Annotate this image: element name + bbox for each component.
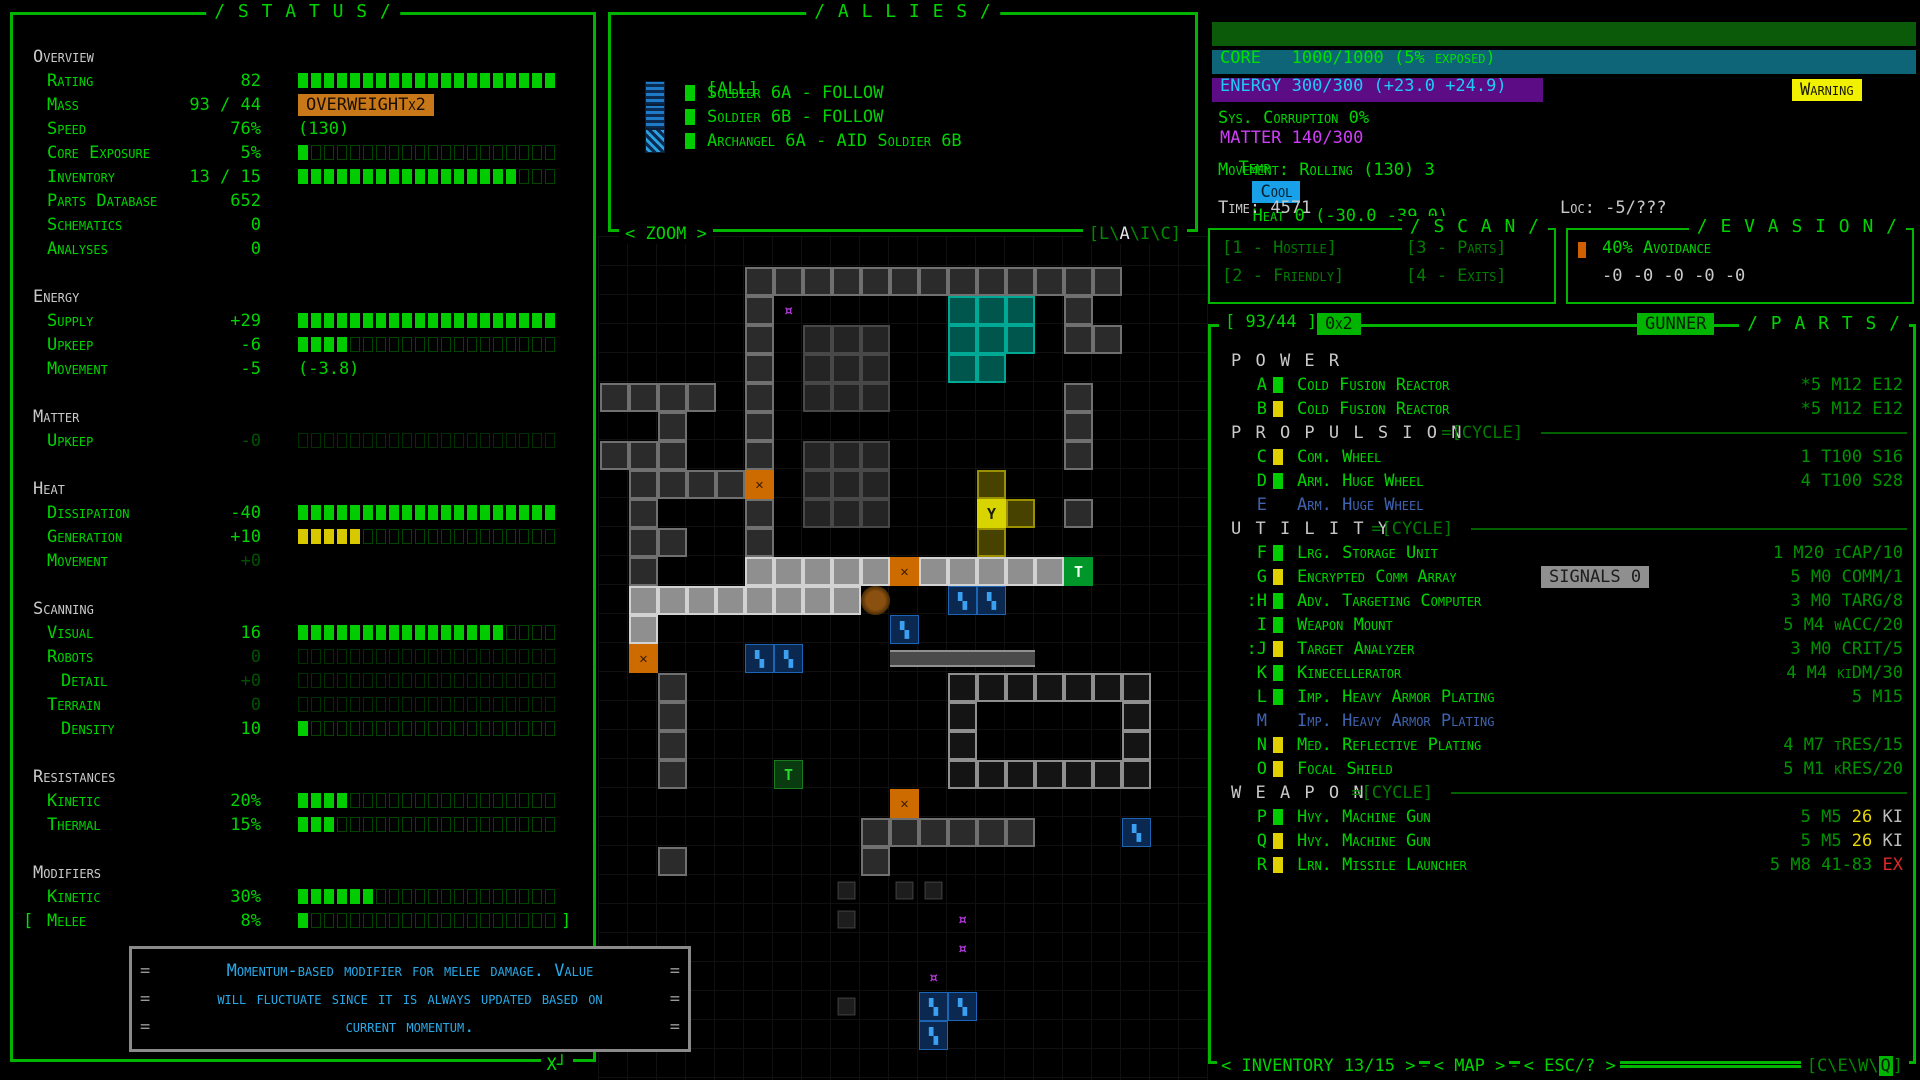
stat-label: Detail bbox=[61, 669, 107, 693]
bar-segment bbox=[324, 721, 334, 736]
part-stat: 3 M0 CRIT/5 bbox=[1790, 639, 1903, 659]
status-row-movement[interactable]: Movement-5(-3.8) bbox=[13, 357, 593, 381]
cycle-button[interactable]: =[CYCLE] bbox=[1341, 781, 1433, 805]
bar-segment bbox=[428, 169, 438, 184]
bar-segment bbox=[506, 817, 516, 832]
status-row-density[interactable]: Density10 bbox=[13, 717, 593, 741]
bar-segment bbox=[467, 913, 477, 928]
parts-row-b-cold-fusion-reactor[interactable]: BCold Fusion Reactor*5 M12 E12 bbox=[1211, 397, 1913, 421]
parts-row-m-imp-heavy-armor-plating[interactable]: MImp. Heavy Armor Plating bbox=[1211, 709, 1913, 733]
stat-label: Kinetic bbox=[47, 885, 101, 909]
bar-segment bbox=[376, 673, 386, 688]
status-row-thermal[interactable]: Thermal15% bbox=[13, 813, 593, 837]
status-row-robots[interactable]: Robots0 bbox=[13, 645, 593, 669]
bar-segment bbox=[324, 913, 334, 928]
map-tile-robot-blue[interactable]: ▚ bbox=[919, 1021, 948, 1050]
bar-segment bbox=[519, 697, 529, 712]
status-row-supply[interactable]: Supply+29 bbox=[13, 309, 593, 333]
bar-segment bbox=[376, 505, 386, 520]
map-tile-wall bbox=[861, 847, 890, 876]
parts-row-j-target-analyzer[interactable]: :JTarget Analyzer3 M0 CRIT/5 bbox=[1211, 637, 1913, 661]
status-row-upkeep[interactable]: Upkeep-6 bbox=[13, 333, 593, 357]
bar-segment bbox=[389, 313, 399, 328]
part-state-block bbox=[1273, 377, 1283, 393]
bar-segment bbox=[376, 793, 386, 808]
status-section-heat: Heat bbox=[13, 477, 593, 501]
stat-bar bbox=[298, 793, 558, 809]
mode-l[interactable]: L bbox=[1099, 224, 1109, 244]
status-row-rating[interactable]: Rating82 bbox=[13, 69, 593, 93]
footer-button-map[interactable]: < MAP > bbox=[1430, 1056, 1510, 1076]
map-tile-wall-mid bbox=[1006, 760, 1035, 789]
bar-segment bbox=[311, 73, 321, 88]
status-row-terrain[interactable]: Terrain0 bbox=[13, 693, 593, 717]
mode-i[interactable]: I bbox=[1140, 224, 1150, 244]
stat-suffix: (-3.8) bbox=[298, 357, 359, 381]
parts-panel: [ 93/44 ] 0x2 GUNNER / P A R T S / P O W… bbox=[1208, 324, 1916, 1064]
bar-segment bbox=[402, 673, 412, 688]
part-name: Adv. Targeting Computer bbox=[1297, 589, 1481, 613]
bar-segment bbox=[441, 793, 451, 808]
bar-segment bbox=[402, 625, 412, 640]
bracket: [ bbox=[1807, 1056, 1817, 1076]
part-name: Encrypted Comm Array bbox=[1297, 565, 1457, 589]
part-name: Hvy. Machine Gun bbox=[1297, 829, 1431, 853]
bar-segment bbox=[363, 145, 373, 160]
bar-segment bbox=[519, 529, 529, 544]
bar-segment bbox=[337, 649, 347, 664]
bar-segment bbox=[441, 697, 451, 712]
map-tile-wall-bright bbox=[919, 557, 948, 586]
bar-segment bbox=[506, 793, 516, 808]
bar-segment bbox=[350, 505, 360, 520]
map-tile-item-purple[interactable]: ¤ bbox=[948, 934, 977, 963]
parts-row-n-med-reflective-plating[interactable]: NMed. Reflective Plating4 M7 tRES/15 bbox=[1211, 733, 1913, 757]
stat-label: Analyses bbox=[47, 237, 108, 261]
part-name: Com. Wheel bbox=[1297, 445, 1381, 469]
bar-segment bbox=[428, 913, 438, 928]
allies-all-row[interactable]: [ALL] bbox=[611, 53, 1195, 77]
bar-segment bbox=[415, 313, 425, 328]
bar-segment bbox=[389, 505, 399, 520]
bar-segment bbox=[545, 505, 555, 520]
bar-segment bbox=[402, 337, 412, 352]
loc-readout: Loc: -5/??? bbox=[1560, 196, 1667, 220]
bar-segment bbox=[545, 337, 555, 352]
energy-label: ENERGY bbox=[1220, 76, 1281, 96]
status-row-core-exposure[interactable]: Core Exposure5% bbox=[13, 141, 593, 165]
bar-segment bbox=[415, 169, 425, 184]
mode-a[interactable]: A bbox=[1120, 224, 1130, 244]
bar-segment bbox=[428, 433, 438, 448]
tooltip-line: = will fluctuate since it is always upda… bbox=[140, 987, 680, 1011]
bar-segment bbox=[454, 721, 464, 736]
bar-segment bbox=[415, 625, 425, 640]
map-tile-wall bbox=[1064, 267, 1093, 296]
map-tile-machine bbox=[803, 441, 832, 470]
separator: \ bbox=[1827, 1056, 1837, 1076]
parts-row-l-imp-heavy-armor-plating[interactable]: LImp. Heavy Armor Plating5 M15 bbox=[1211, 685, 1913, 709]
bar-segment bbox=[324, 673, 334, 688]
part-stats: 5 M5 26 KI bbox=[1801, 829, 1903, 853]
parts-row-q-hvy-machine-gun[interactable]: QHvy. Machine Gun5 M5 26 KI bbox=[1211, 829, 1913, 853]
map-tile-item-purple[interactable]: ¤ bbox=[774, 296, 803, 325]
map-tile-wall-mid bbox=[1064, 760, 1093, 789]
map-tile-machine-olive bbox=[977, 528, 1006, 557]
stat-label: Upkeep bbox=[47, 333, 93, 357]
energy-value: 300/300 (+23.0 +24.9) bbox=[1292, 76, 1507, 96]
map-tile-item-crate[interactable]: ✕ bbox=[890, 557, 919, 586]
bar-segment bbox=[532, 313, 542, 328]
map-tile-robot-blue[interactable]: ▚ bbox=[774, 644, 803, 673]
parts-row-r-lrn-missile-launcher[interactable]: RLrn. Missile Launcher5 M8 41-83 EX bbox=[1211, 853, 1913, 877]
bar-segment bbox=[311, 817, 321, 832]
parts-row-a-cold-fusion-reactor[interactable]: ACold Fusion Reactor*5 M12 E12 bbox=[1211, 373, 1913, 397]
part-stat: KI bbox=[1872, 807, 1903, 827]
bar-segment bbox=[441, 337, 451, 352]
bar-segment bbox=[311, 697, 321, 712]
bar-segment bbox=[298, 145, 308, 160]
map-tile-robot-blue[interactable]: ▚ bbox=[977, 586, 1006, 615]
bar-segment bbox=[311, 625, 321, 640]
stat-value: 0 bbox=[131, 693, 261, 717]
map-tile-wall-bright bbox=[803, 586, 832, 615]
map-tile-wall-bright bbox=[832, 557, 861, 586]
bar-segment bbox=[389, 793, 399, 808]
map-tile-machine bbox=[803, 470, 832, 499]
parts-row-k-kinecellerator[interactable]: KKinecellerator4 M4 kiDM/30 bbox=[1211, 661, 1913, 685]
parts-overweight-badge[interactable]: 0x2 bbox=[1317, 313, 1361, 335]
footer-button-esc[interactable]: < ESC/? > bbox=[1520, 1056, 1620, 1076]
bar-segment bbox=[363, 529, 373, 544]
map-tile-wall bbox=[1064, 441, 1093, 470]
map-tile-wall-mid bbox=[948, 673, 977, 702]
section-label: Modifiers bbox=[33, 861, 101, 885]
stat-value: +0 bbox=[131, 549, 261, 573]
section-label: P R O P U L S I O N bbox=[1231, 421, 1463, 445]
ally-row-archangel-6a-aid-soldier-6b[interactable]: Archangel 6A - AID Soldier 6B bbox=[611, 129, 1195, 153]
map-tile-item-crate[interactable]: ✕ bbox=[745, 470, 774, 499]
section-label: Energy bbox=[33, 285, 79, 309]
parts-row-d-arm-huge-wheel[interactable]: DArm. Huge Wheel4 T100 S28 bbox=[1211, 469, 1913, 493]
bar-segment bbox=[480, 505, 490, 520]
part-stats: 1 M20 iCAP/10 bbox=[1773, 541, 1903, 565]
map-tile-wall bbox=[1006, 267, 1035, 296]
separator: \ bbox=[1150, 224, 1160, 244]
status-row-speed[interactable]: Speed76%(130) bbox=[13, 117, 593, 141]
cycle-button[interactable]: =[CYCLE] bbox=[1361, 517, 1453, 541]
bar-segment bbox=[454, 889, 464, 904]
part-stats: 1 T100 S16 bbox=[1801, 445, 1903, 469]
map-tile-wall-mid bbox=[1035, 760, 1064, 789]
parts-row-h-adv-targeting-computer[interactable]: :HAdv. Targeting Computer3 M0 TARG/8 bbox=[1211, 589, 1913, 613]
map-tile-machine-small bbox=[838, 998, 856, 1016]
map-tile-wall bbox=[745, 354, 774, 383]
bar-segment bbox=[389, 889, 399, 904]
status-row-movement[interactable]: Movement+0 bbox=[13, 549, 593, 573]
part-state-block bbox=[1273, 857, 1283, 873]
section-label: Overview bbox=[33, 45, 94, 69]
bar-segment bbox=[337, 313, 347, 328]
bar-segment bbox=[467, 145, 477, 160]
part-state-block bbox=[1273, 737, 1283, 753]
part-stat: 5 M8 41-83 bbox=[1770, 855, 1883, 875]
status-row-generation[interactable]: Generation+10 bbox=[13, 525, 593, 549]
bar-segment bbox=[454, 625, 464, 640]
status-row-kinetic[interactable]: Kinetic30% bbox=[13, 885, 593, 909]
bracket: [ bbox=[1089, 224, 1099, 244]
bar-segment bbox=[363, 313, 373, 328]
map-tile-machine-small bbox=[896, 882, 914, 900]
bar-segment bbox=[311, 721, 321, 736]
bar-segment bbox=[298, 625, 308, 640]
part-slot-letter: G bbox=[1241, 565, 1267, 589]
ally-row-soldier-6a-follow[interactable]: Soldier 6A - FOLLOW bbox=[611, 81, 1195, 105]
stat-label: Generation bbox=[47, 525, 122, 549]
status-row-detail[interactable]: Detail+0 bbox=[13, 669, 593, 693]
bar-segment bbox=[532, 169, 542, 184]
mode-c[interactable]: C bbox=[1817, 1056, 1827, 1076]
bar-segment bbox=[311, 337, 321, 352]
status-row-dissipation[interactable]: Dissipation-40 bbox=[13, 501, 593, 525]
map-tile-machine-olive bbox=[977, 470, 1006, 499]
bar-segment bbox=[480, 817, 490, 832]
parts-row-p-hvy-machine-gun[interactable]: PHvy. Machine Gun5 M5 26 KI bbox=[1211, 805, 1913, 829]
stat-label: Upkeep bbox=[47, 429, 93, 453]
stat-bar bbox=[298, 73, 558, 89]
bar-segment bbox=[363, 505, 373, 520]
map-tile-conveyor bbox=[948, 650, 977, 667]
part-state-block bbox=[1273, 665, 1283, 681]
map-tile-wall-mid bbox=[948, 760, 977, 789]
map-tile-wall-mid bbox=[977, 760, 1006, 789]
scan-option-friendly[interactable]: [2 - Friendly] bbox=[1222, 266, 1344, 286]
bar-segment bbox=[376, 625, 386, 640]
bar-segment bbox=[506, 433, 516, 448]
bar-segment bbox=[376, 73, 386, 88]
mode-w[interactable]: W bbox=[1858, 1056, 1868, 1076]
bar-segment bbox=[480, 337, 490, 352]
parts-row-o-focal-shield[interactable]: OFocal Shield5 M1 kRES/20 bbox=[1211, 757, 1913, 781]
status-row-upkeep[interactable]: Upkeep-0 bbox=[13, 429, 593, 453]
bar-segment bbox=[493, 817, 503, 832]
part-slot-letter: O bbox=[1241, 757, 1267, 781]
stat-value: 15% bbox=[131, 813, 261, 837]
bar-segment bbox=[415, 649, 425, 664]
status-row-schematics[interactable]: Schematics0 bbox=[13, 213, 593, 237]
stat-value: 10 bbox=[131, 717, 261, 741]
map-tile-item-purple[interactable]: ¤ bbox=[919, 963, 948, 992]
bar-segment bbox=[298, 73, 308, 88]
map-tile-wall bbox=[658, 412, 687, 441]
map-tile-wall bbox=[977, 267, 1006, 296]
map-tile-player[interactable]: T bbox=[774, 760, 803, 789]
map-tile-creature-brown[interactable] bbox=[861, 586, 890, 615]
footer-button-inventory-13-15[interactable]: < INVENTORY 13/15 > bbox=[1217, 1056, 1419, 1076]
bar-segment bbox=[389, 697, 399, 712]
allies-mode-switch[interactable]: [L\A\I\C] bbox=[1083, 224, 1187, 244]
map-tile-wall-bright bbox=[716, 586, 745, 615]
parts-mode-badge[interactable]: GUNNER bbox=[1637, 313, 1714, 335]
bar-segment bbox=[350, 145, 360, 160]
bar-segment bbox=[298, 697, 308, 712]
map-tile-wall-bright bbox=[774, 557, 803, 586]
ally-health-block bbox=[685, 109, 695, 125]
bar-segment bbox=[519, 721, 529, 736]
bar-segment bbox=[493, 793, 503, 808]
bar-segment bbox=[506, 529, 516, 544]
scan-option-hostile[interactable]: [1 - Hostile] bbox=[1222, 238, 1337, 258]
map-tile-wall-bright bbox=[629, 615, 658, 644]
bar-segment bbox=[350, 313, 360, 328]
bar-segment bbox=[363, 337, 373, 352]
map-tile-exit-green[interactable]: T bbox=[1064, 557, 1093, 586]
bar-segment bbox=[428, 337, 438, 352]
parts-row-f-lrg-storage-unit[interactable]: FLrg. Storage Unit1 M20 iCAP/10 bbox=[1211, 541, 1913, 565]
map-tile-machine bbox=[861, 470, 890, 499]
bar-segment bbox=[532, 817, 542, 832]
mode-e[interactable]: E bbox=[1838, 1056, 1848, 1076]
bar-segment bbox=[467, 793, 477, 808]
bar-segment bbox=[389, 433, 399, 448]
bar-segment bbox=[454, 913, 464, 928]
bar-segment bbox=[337, 169, 347, 184]
bar-segment bbox=[493, 433, 503, 448]
parts-panel-title: / P A R T S / bbox=[1739, 313, 1909, 334]
map-tile-wall-bright bbox=[832, 586, 861, 615]
status-panel-title: / S T A T U S / bbox=[206, 1, 400, 22]
bar-segment bbox=[350, 649, 360, 664]
melee-modifier-tooltip: = Momentum-based modifier for melee dama… bbox=[129, 946, 691, 1052]
parts-row-i-weapon-mount[interactable]: IWeapon Mount5 M4 wACC/20 bbox=[1211, 613, 1913, 637]
part-state-block bbox=[1273, 593, 1283, 609]
allies-panel: / A L L I E S / [ALL] Soldier 6A - FOLLO… bbox=[608, 12, 1198, 232]
stat-bar bbox=[298, 337, 558, 353]
bar-segment bbox=[337, 697, 347, 712]
status-section-modifiers: Modifiers bbox=[13, 861, 593, 885]
map-tile-wall bbox=[803, 267, 832, 296]
bar-segment bbox=[298, 505, 308, 520]
map-tile-wall bbox=[1064, 383, 1093, 412]
status-close-button[interactable]: X┘ bbox=[541, 1055, 573, 1075]
part-stat: 26 bbox=[1852, 831, 1872, 851]
stat-label: Density bbox=[61, 717, 115, 741]
parts-row-e-arm-huge-wheel[interactable]: EArm. Huge Wheel bbox=[1211, 493, 1913, 517]
map-tile-wall bbox=[890, 818, 919, 847]
parts-section-power: P O W E R bbox=[1211, 349, 1913, 373]
map-tile-wall bbox=[658, 383, 687, 412]
mode-q[interactable]: Q bbox=[1879, 1056, 1893, 1076]
status-row-inventory[interactable]: Inventory13 / 15 bbox=[13, 165, 593, 189]
status-row-kinetic[interactable]: Kinetic20% bbox=[13, 789, 593, 813]
ally-row-soldier-6b-follow[interactable]: Soldier 6B - FOLLOW bbox=[611, 105, 1195, 129]
bar-segment bbox=[350, 697, 360, 712]
map-tile-robot-blue[interactable]: ▚ bbox=[948, 586, 977, 615]
bar-segment bbox=[519, 73, 529, 88]
map-tile-robot-blue[interactable]: ▚ bbox=[919, 992, 948, 1021]
bar-segment bbox=[480, 73, 490, 88]
parts-row-g-encrypted-comm-array[interactable]: GEncrypted Comm ArraySIGNALS 05 M0 COMM/… bbox=[1211, 565, 1913, 589]
bar-segment bbox=[389, 337, 399, 352]
evasion-panel: / E V A S I O N / 40% Avoidance -0 -0 -0… bbox=[1566, 228, 1914, 304]
bar-segment bbox=[376, 889, 386, 904]
map-tile-item-crate[interactable]: ✕ bbox=[629, 644, 658, 673]
bar-segment bbox=[337, 913, 347, 928]
status-row-visual[interactable]: Visual16 bbox=[13, 621, 593, 645]
part-name: Focal Shield bbox=[1297, 757, 1393, 781]
time-readout: Time: 4571 bbox=[1218, 196, 1311, 220]
map-tile-robot-blue[interactable]: ▚ bbox=[745, 644, 774, 673]
bar-segment bbox=[298, 337, 308, 352]
status-row-analyses[interactable]: Analyses0 bbox=[13, 237, 593, 261]
bar-segment bbox=[337, 817, 347, 832]
map-tile-wall-mid bbox=[1093, 673, 1122, 702]
bar-segment bbox=[350, 529, 360, 544]
map-tile-robot-blue[interactable]: ▚ bbox=[948, 992, 977, 1021]
part-slot-letter: Q bbox=[1241, 829, 1267, 853]
bar-segment bbox=[493, 649, 503, 664]
scan-option-parts[interactable]: [3 - Parts] bbox=[1406, 238, 1507, 258]
mode-c[interactable]: C bbox=[1161, 224, 1171, 244]
map-tile-wall bbox=[745, 528, 774, 557]
parts-row-c-com-wheel[interactable]: CCom. Wheel1 T100 S16 bbox=[1211, 445, 1913, 469]
bar-segment bbox=[441, 73, 451, 88]
bar-segment bbox=[441, 505, 451, 520]
bar-segment bbox=[298, 721, 308, 736]
status-row-melee[interactable]: []Melee8% bbox=[13, 909, 593, 933]
bar-segment bbox=[402, 697, 412, 712]
map-tile-item-purple[interactable]: ¤ bbox=[948, 905, 977, 934]
map-tile-item-crate[interactable]: ✕ bbox=[890, 789, 919, 818]
map-tile-robot-yellow[interactable]: Y bbox=[977, 499, 1006, 528]
part-state-block bbox=[1273, 809, 1283, 825]
bar-segment bbox=[480, 913, 490, 928]
map-tile-wall bbox=[948, 267, 977, 296]
bar-segment bbox=[376, 649, 386, 664]
bar-segment bbox=[454, 817, 464, 832]
status-row-mass[interactable]: Mass93 / 44OVERWEIGHTx2 bbox=[13, 93, 593, 117]
part-stat: 4 T100 S28 bbox=[1801, 471, 1903, 491]
part-slot-letter: I bbox=[1241, 613, 1267, 637]
stat-bar bbox=[298, 433, 558, 449]
bar-segment bbox=[506, 889, 516, 904]
stat-bar bbox=[298, 625, 558, 641]
bar-segment bbox=[454, 649, 464, 664]
bar-segment bbox=[545, 145, 555, 160]
map-tile-robot-blue[interactable]: ▚ bbox=[890, 615, 919, 644]
bar-segment bbox=[467, 673, 477, 688]
scan-option-exits[interactable]: [4 - Exits] bbox=[1406, 266, 1507, 286]
soldier-sprite-icon bbox=[645, 105, 665, 129]
map-tile-robot-blue[interactable]: ▚ bbox=[1122, 818, 1151, 847]
bar-segment bbox=[311, 529, 321, 544]
bar-segment bbox=[415, 913, 425, 928]
stat-label: Thermal bbox=[47, 813, 101, 837]
parts-mode-switch[interactable]: [C\E\W\Q] bbox=[1801, 1056, 1909, 1076]
cycle-button[interactable]: =[CYCLE] bbox=[1431, 421, 1523, 445]
status-row-parts-database[interactable]: Parts Database652 bbox=[13, 189, 593, 213]
bar-segment bbox=[441, 145, 451, 160]
map-tile-wall bbox=[977, 818, 1006, 847]
bar-segment bbox=[506, 505, 516, 520]
bar-segment bbox=[441, 625, 451, 640]
map-zoom-button[interactable]: < ZOOM > bbox=[619, 224, 713, 244]
part-name: Cold Fusion Reactor bbox=[1297, 373, 1449, 397]
bar-segment bbox=[311, 169, 321, 184]
stat-value: 76% bbox=[131, 117, 261, 141]
stat-label: Schematics bbox=[47, 213, 122, 237]
tooltip-text: will fluctuate since it is always update… bbox=[207, 987, 613, 1011]
